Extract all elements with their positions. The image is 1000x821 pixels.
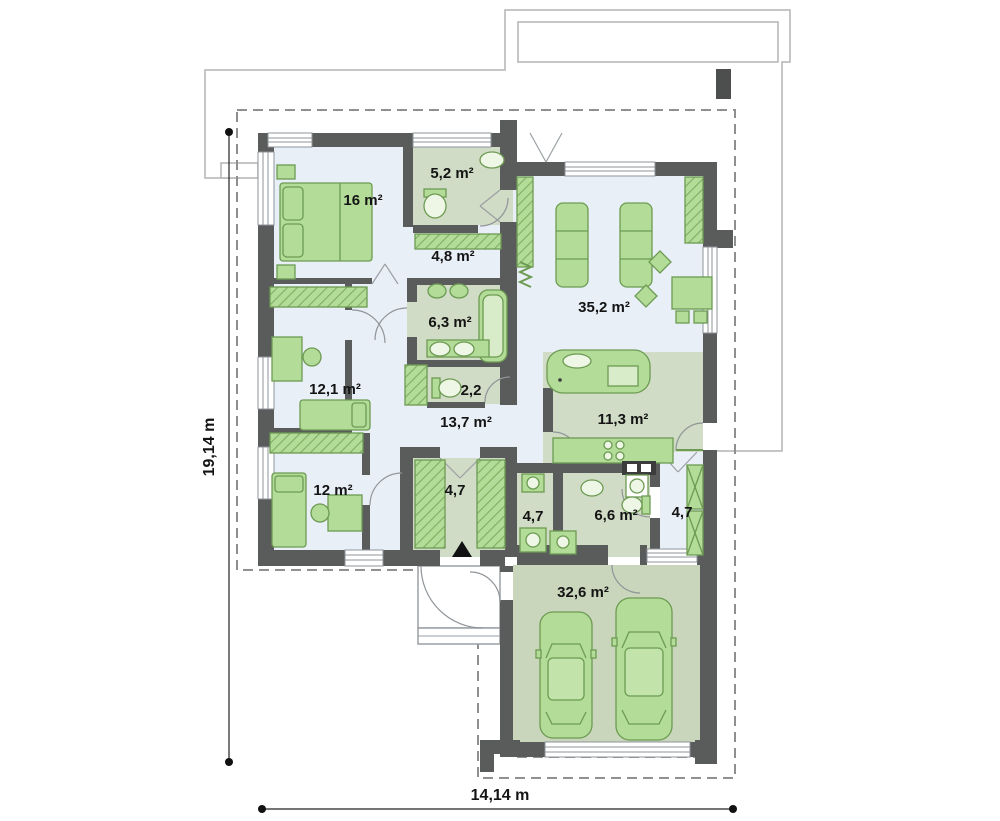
window (413, 133, 491, 147)
wall (480, 447, 505, 458)
window (268, 133, 312, 147)
wall (700, 560, 717, 744)
wall (717, 230, 733, 248)
sink (581, 480, 603, 496)
wall (703, 162, 717, 247)
wall (505, 447, 517, 557)
wall (500, 120, 517, 176)
window (565, 162, 655, 176)
room-label-corridor-east: 4,7 (672, 504, 693, 521)
cabinet (405, 365, 427, 405)
room-label-bathroom-2: 6,3 m² (428, 314, 471, 331)
sink (480, 152, 504, 168)
room-label-bathroom-3: 6,6 m² (594, 507, 637, 524)
nightstand (277, 265, 295, 279)
wall (500, 566, 513, 572)
wardrobe (270, 287, 367, 307)
chair (694, 311, 707, 323)
cooktop (608, 366, 638, 386)
wall (400, 447, 413, 557)
room-label-bathroom-1: 5,2 m² (430, 165, 473, 182)
wardrobe (477, 460, 505, 548)
room-label-bedroom-3: 12 m² (313, 482, 352, 499)
room-label-bedroom-1: 16 m² (343, 192, 382, 209)
kitchen-sink (563, 354, 591, 368)
oven (622, 461, 656, 475)
wall (407, 285, 417, 302)
garage-gate (545, 742, 690, 757)
window (258, 152, 274, 225)
sink (454, 342, 474, 356)
chair (311, 504, 329, 522)
dimension-dot (225, 758, 233, 766)
room-label-bedroom-2: 12,1 m² (309, 381, 361, 398)
room-label-corridor-main: 13,7 m² (440, 414, 492, 431)
room-label-entrance-hall: 4,7 (445, 482, 466, 499)
wall (258, 550, 345, 566)
toilet (428, 284, 446, 298)
window (345, 550, 383, 566)
room-label-utility: 4,7 (523, 508, 544, 525)
wall (695, 740, 717, 764)
chair (303, 348, 321, 366)
kitchen-island (547, 350, 650, 393)
shower (520, 528, 546, 552)
wall (413, 225, 478, 233)
sofa (556, 203, 588, 287)
dimension-dot (729, 805, 737, 813)
wardrobe (415, 460, 445, 548)
tv-cabinet (517, 177, 533, 267)
wall (480, 740, 494, 772)
window-sill (221, 163, 258, 178)
dimension-dot (225, 128, 233, 136)
kitchen-counter (553, 438, 673, 463)
car (612, 598, 676, 740)
chair (676, 311, 689, 323)
dimension-label-height: 19,14 m (201, 418, 218, 477)
bed (272, 473, 306, 547)
sofa (620, 203, 652, 287)
wall (500, 176, 517, 190)
wall (427, 402, 485, 408)
wall (543, 388, 553, 432)
wall (413, 550, 440, 566)
car (536, 612, 596, 738)
wall (655, 162, 703, 176)
sink (430, 342, 450, 356)
dimension-dot (258, 805, 266, 813)
utility-sink (522, 474, 544, 492)
dining-table (672, 277, 712, 309)
bidet (450, 284, 468, 298)
wall (413, 447, 440, 458)
dimension-label-width: 14,14 m (471, 787, 530, 804)
wardrobe (415, 234, 501, 249)
floor-plan-canvas: 16 m² 5,2 m² 4,8 m² 6,3 m² 2,2 12,1 m² 1… (0, 0, 1000, 821)
washing-machine (626, 475, 648, 497)
bookshelf (685, 177, 703, 243)
wardrobe (270, 433, 363, 453)
wall (703, 333, 717, 423)
wall (517, 162, 565, 176)
room-label-wc: 2,2 (461, 382, 482, 399)
chimney (716, 69, 731, 99)
room-label-kitchen: 11,3 m² (598, 411, 649, 428)
room-label-living-room: 35,2 m² (578, 299, 630, 316)
wall (480, 550, 505, 566)
room-label-hall-upper: 4,8 m² (431, 248, 474, 265)
toilet (432, 378, 461, 398)
wall (640, 545, 647, 565)
wall (403, 147, 413, 227)
nightstand (277, 165, 295, 179)
shower (550, 531, 576, 554)
porch-slab (418, 566, 500, 628)
floor-plan-drawing: 16 m² 5,2 m² 4,8 m² 6,3 m² 2,2 12,1 m² 1… (0, 0, 1000, 821)
bed (300, 400, 370, 430)
wall (500, 600, 513, 742)
toilet (424, 189, 446, 218)
room-label-garage: 32,6 m² (557, 584, 609, 601)
wall (362, 505, 370, 550)
